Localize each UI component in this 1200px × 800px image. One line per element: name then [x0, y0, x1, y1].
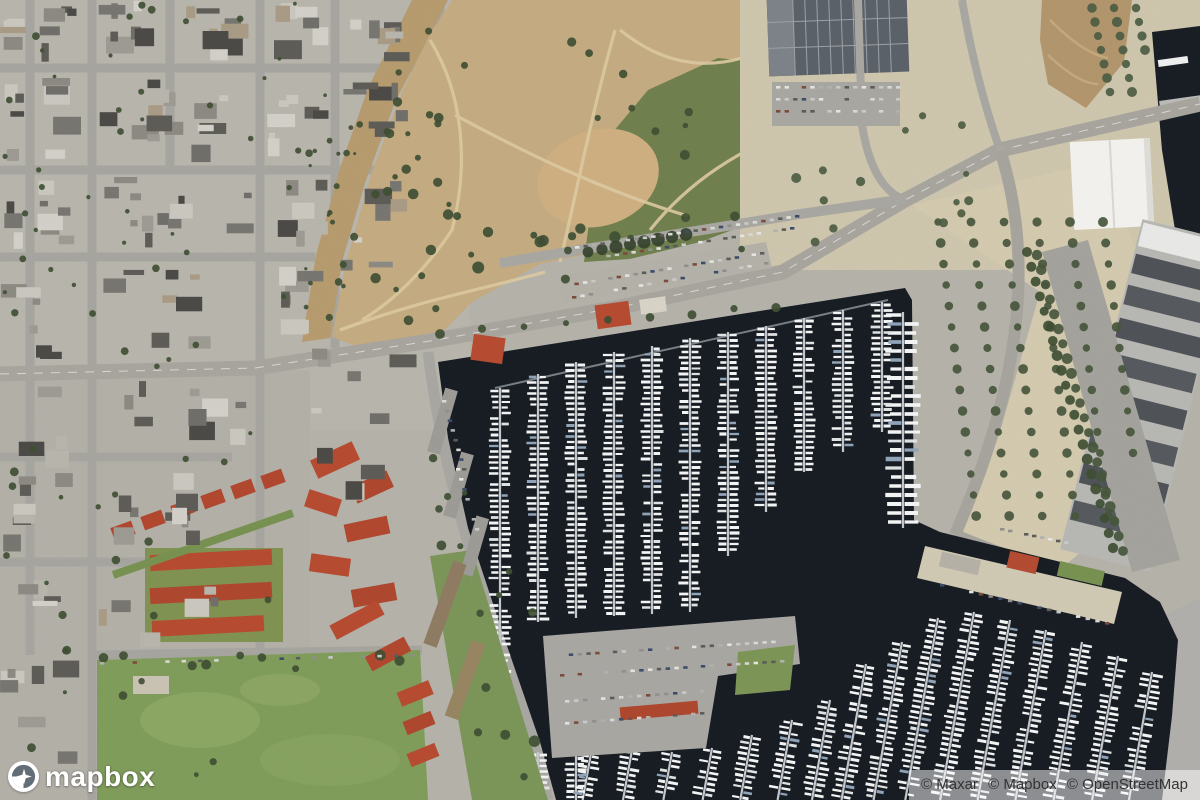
attribution-bar[interactable]: © Maxar © Mapbox © OpenStreetMap: [909, 770, 1200, 800]
attribution-osm[interactable]: © OpenStreetMap: [1067, 776, 1188, 793]
mapbox-logo-icon: [8, 761, 39, 792]
mapbox-logo[interactable]: mapbox: [8, 761, 155, 792]
map-canvas[interactable]: mapbox © Maxar © Mapbox © OpenStreetMap: [0, 0, 1200, 800]
mapbox-wordmark: mapbox: [45, 763, 155, 791]
satellite-imagery: [0, 0, 1200, 800]
attribution-mapbox[interactable]: © Mapbox: [988, 776, 1057, 793]
attribution-maxar[interactable]: © Maxar: [921, 776, 978, 793]
